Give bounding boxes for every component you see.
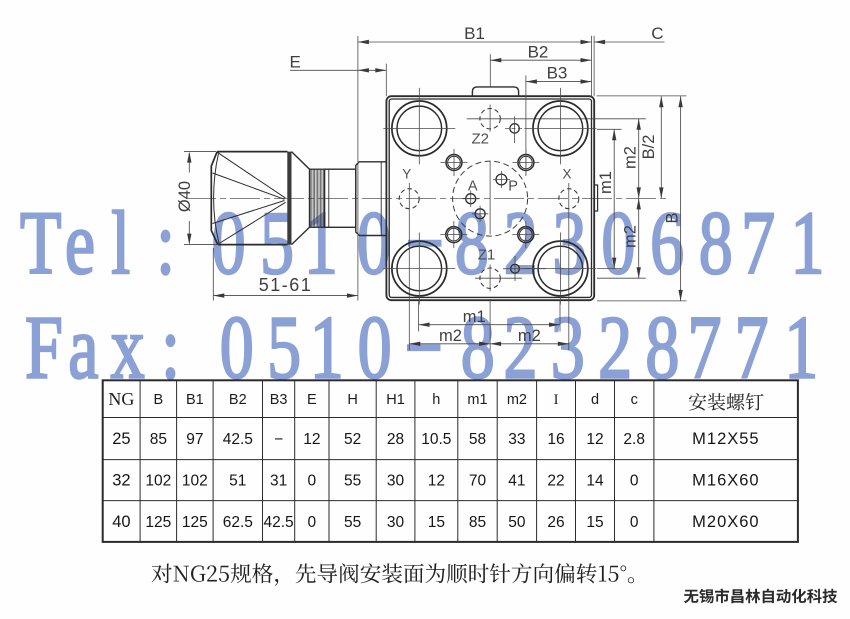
svg-text:H: H <box>347 392 357 408</box>
svg-text:I: I <box>554 392 559 408</box>
svg-text:m2: m2 <box>439 327 462 345</box>
svg-text:40: 40 <box>112 513 130 531</box>
svg-text:E: E <box>307 392 317 408</box>
svg-text:m2: m2 <box>507 392 527 408</box>
svg-text:h: h <box>432 392 440 408</box>
svg-text:30: 30 <box>387 514 405 531</box>
svg-text:A: A <box>468 179 478 195</box>
svg-text:125: 125 <box>182 514 208 531</box>
svg-text:B2: B2 <box>229 392 247 408</box>
svg-text:15: 15 <box>428 514 445 531</box>
svg-text:M12X55: M12X55 <box>692 430 759 448</box>
svg-text:−: − <box>274 431 283 448</box>
svg-text:50: 50 <box>508 514 526 531</box>
svg-text:H1: H1 <box>386 392 405 408</box>
svg-text:m2: m2 <box>518 327 541 345</box>
svg-text:m1: m1 <box>463 308 486 326</box>
svg-text:0: 0 <box>308 473 317 490</box>
svg-text:51-61: 51-61 <box>259 275 313 295</box>
svg-text:51: 51 <box>229 473 246 490</box>
svg-text:41: 41 <box>508 473 525 490</box>
svg-text:m2: m2 <box>621 225 639 248</box>
svg-text:B: B <box>663 212 681 223</box>
svg-text:26: 26 <box>547 514 564 531</box>
svg-text:42.5: 42.5 <box>264 514 294 531</box>
svg-text:m2: m2 <box>621 146 639 169</box>
svg-text:P: P <box>508 179 518 195</box>
svg-text:85: 85 <box>469 514 486 531</box>
svg-text:32: 32 <box>112 472 130 490</box>
svg-text:B1: B1 <box>186 392 204 408</box>
svg-text:33: 33 <box>508 431 525 448</box>
svg-text:Tel: 0510−82306871: Tel: 0510−82306871 <box>20 194 824 293</box>
svg-text:c: c <box>631 392 638 408</box>
svg-text:22: 22 <box>547 473 564 490</box>
svg-text:B1: B1 <box>464 24 485 43</box>
svg-text:Z2: Z2 <box>472 131 490 148</box>
svg-text:M20X60: M20X60 <box>692 513 759 531</box>
svg-text:12: 12 <box>303 431 320 448</box>
svg-text:d: d <box>591 392 599 408</box>
svg-text:B/2: B/2 <box>640 135 658 160</box>
svg-text:14: 14 <box>586 473 604 490</box>
svg-text:55: 55 <box>344 473 361 490</box>
svg-text:58: 58 <box>469 431 486 448</box>
svg-text:70: 70 <box>469 473 487 490</box>
svg-text:125: 125 <box>145 514 171 531</box>
svg-text:m1: m1 <box>597 171 615 194</box>
svg-text:62.5: 62.5 <box>223 514 253 531</box>
svg-text:85: 85 <box>150 431 167 448</box>
svg-text:0: 0 <box>630 473 639 490</box>
svg-text:0: 0 <box>630 514 639 531</box>
svg-text:12: 12 <box>586 431 603 448</box>
svg-text:15: 15 <box>586 514 603 531</box>
svg-text:m1: m1 <box>467 392 487 408</box>
svg-text:B3: B3 <box>547 64 568 83</box>
svg-text:102: 102 <box>145 473 171 490</box>
svg-text:102: 102 <box>182 473 208 490</box>
svg-text:B3: B3 <box>270 392 288 408</box>
svg-text:2.8: 2.8 <box>623 431 645 448</box>
svg-text:E: E <box>290 53 301 72</box>
svg-text:97: 97 <box>186 431 203 448</box>
svg-text:C: C <box>651 24 663 43</box>
svg-text:12: 12 <box>428 473 445 490</box>
svg-text:Y: Y <box>402 166 411 181</box>
svg-text:16: 16 <box>547 431 564 448</box>
svg-text:Fax: 0510−82328771: Fax: 0510−82328771 <box>25 298 818 397</box>
svg-text:10.5: 10.5 <box>421 431 451 448</box>
svg-text:B: B <box>154 392 164 408</box>
svg-text:0: 0 <box>308 514 317 531</box>
svg-text:30: 30 <box>387 473 405 490</box>
svg-text:B2: B2 <box>528 42 549 61</box>
svg-text:55: 55 <box>344 514 361 531</box>
svg-text:M16X60: M16X60 <box>692 472 759 490</box>
svg-text:42.5: 42.5 <box>223 431 253 448</box>
svg-text:28: 28 <box>387 431 404 448</box>
svg-text:Ø40: Ø40 <box>176 181 194 212</box>
svg-text:31: 31 <box>270 473 287 490</box>
svg-text:X: X <box>563 166 572 181</box>
svg-text:NG: NG <box>108 389 134 409</box>
svg-text:52: 52 <box>344 431 361 448</box>
svg-text:25: 25 <box>112 430 130 448</box>
svg-text:Z1: Z1 <box>478 247 496 264</box>
